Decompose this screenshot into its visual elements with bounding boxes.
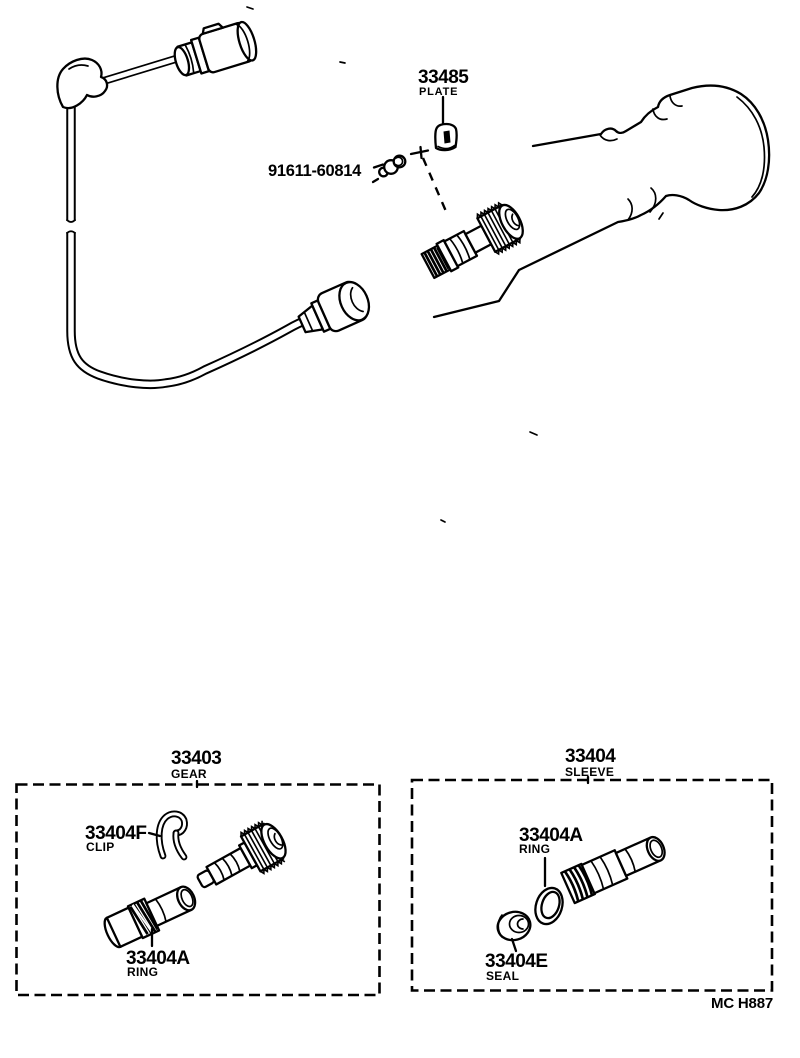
sleeve-group-name: SLEEVE [565, 765, 614, 779]
gear-group-name: GEAR [171, 767, 207, 781]
speedometer-cable-drawing [57, 15, 374, 384]
scan-specks [247, 7, 537, 522]
cable-lower-connector [294, 277, 375, 343]
tee-mark-tick [421, 147, 422, 158]
callout-plate-code: 33485 [418, 67, 469, 88]
sleeve-group-code: 33404 [565, 746, 616, 767]
driven-gear-drawing [189, 816, 293, 902]
callout-sleeve-ring-name: RING [519, 842, 550, 856]
leader-lines-top [374, 97, 448, 216]
gear-group-box [17, 781, 380, 995]
o-ring-drawing [531, 884, 567, 927]
doc-code: MC H887 [711, 995, 773, 1012]
extension-housing-drawing [434, 86, 769, 317]
clip-drawing [159, 814, 184, 857]
callout-bolt-code: 91611-60814 [268, 162, 362, 180]
cable-elbow [57, 59, 107, 108]
dashed-pointer-line [423, 158, 448, 216]
sleeve-group-box [412, 777, 772, 991]
plate-drawing [435, 124, 456, 150]
callout-seal-name: SEAL [486, 969, 519, 983]
diagram-drawing: 33485 PLATE 91611-60814 33403 GEAR 33404… [0, 0, 800, 1058]
callout-labels: 33485 PLATE 91611-60814 33403 GEAR 33404… [85, 67, 773, 1012]
gear-sleeve-drawing [100, 879, 200, 951]
parts-diagram-page: 33485 PLATE 91611-60814 33403 GEAR 33404… [0, 0, 800, 1058]
callout-clip-name: CLIP [86, 840, 115, 854]
cable-upper-connector [169, 15, 260, 82]
gear-group-code: 33403 [171, 748, 221, 769]
callout-gear-ring-name: RING [127, 965, 158, 979]
driven-gear-assembly-drawing [417, 198, 529, 286]
callout-plate-name: PLATE [419, 86, 458, 98]
seal-drawing [494, 908, 533, 944]
bolt-drawing [373, 156, 405, 182]
tee-mark [411, 151, 428, 155]
